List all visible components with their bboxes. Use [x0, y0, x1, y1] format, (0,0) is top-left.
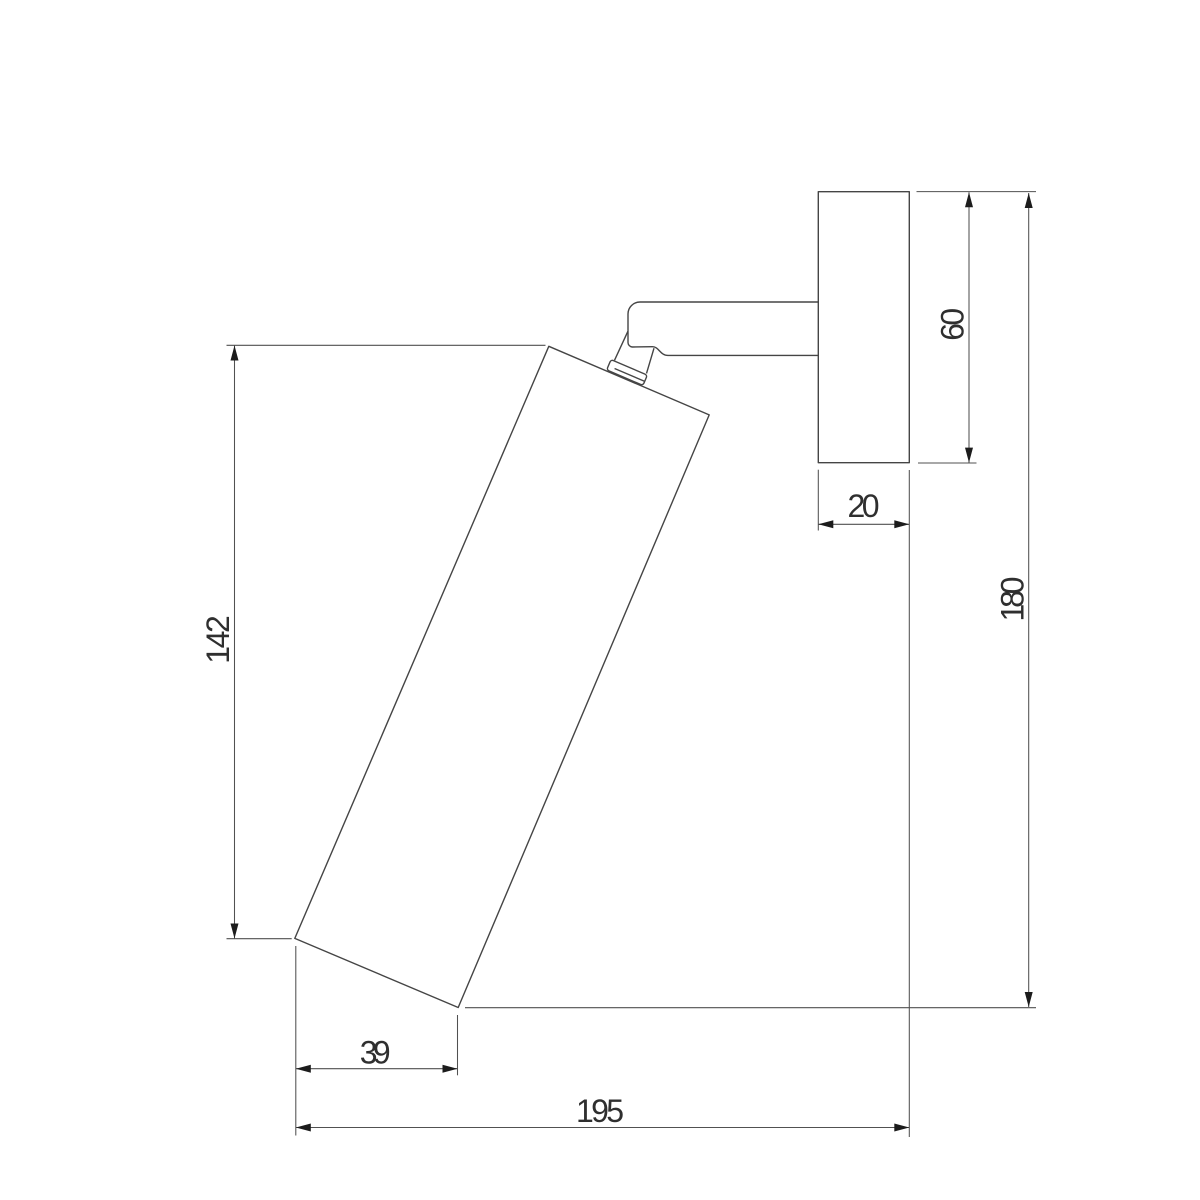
svg-text:39: 39	[360, 1035, 391, 1071]
svg-text:142: 142	[200, 615, 236, 664]
svg-text:195: 195	[576, 1093, 624, 1129]
svg-text:180: 180	[995, 577, 1031, 622]
svg-text:20: 20	[848, 488, 880, 524]
svg-text:60: 60	[935, 308, 971, 341]
